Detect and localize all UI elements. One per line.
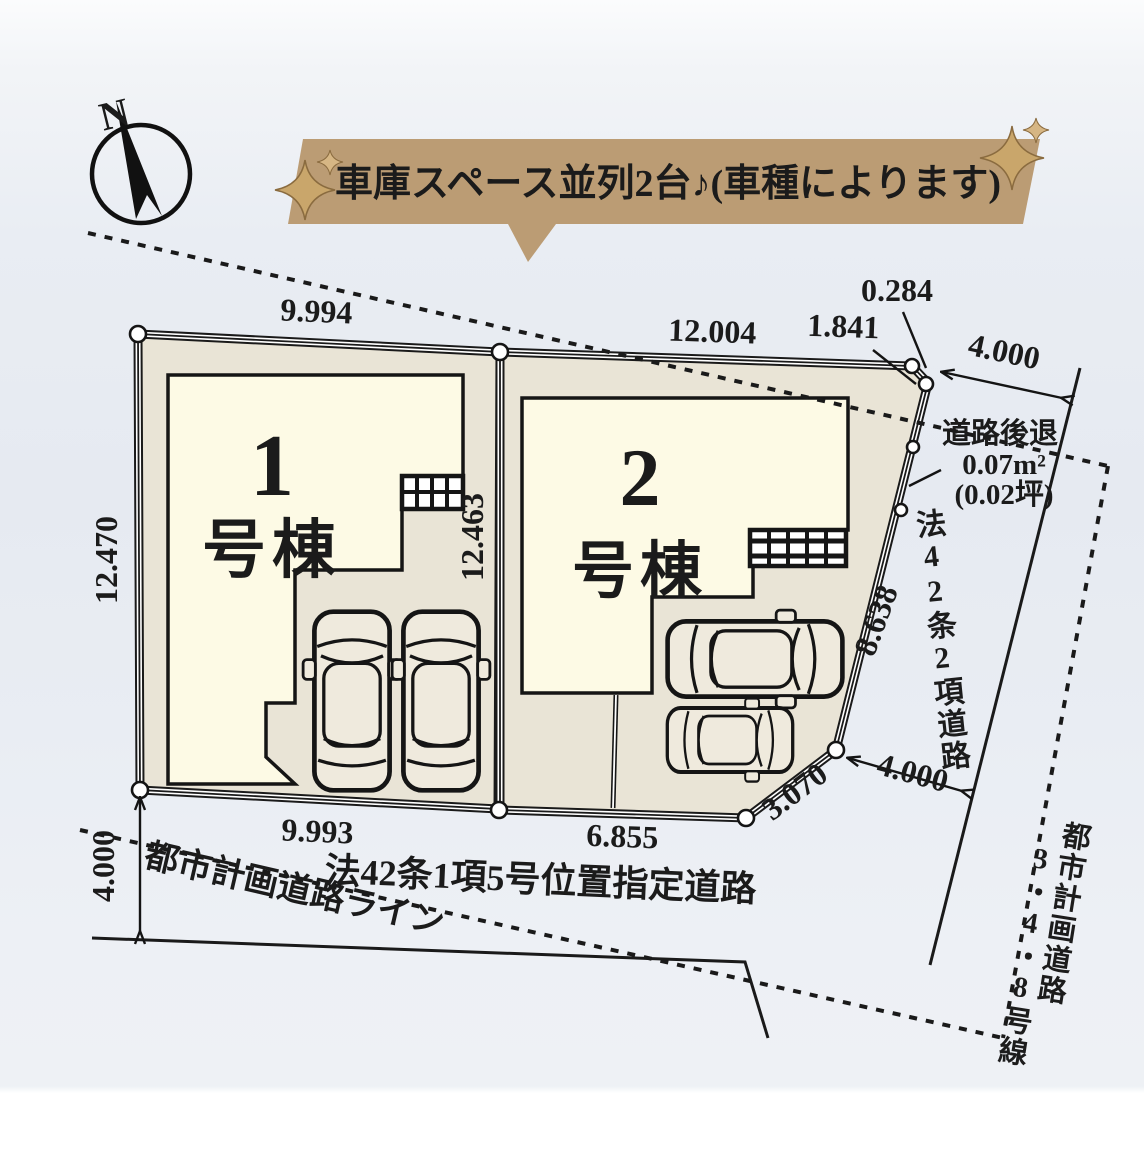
car-top-view [668,610,843,708]
dim-bottom-road-width: 4.000 [85,830,121,902]
dim-lot1-bottom: 9.993 [281,811,355,850]
dim-lot2-corner: 0.284 [861,272,933,308]
setback-title: 道路後退 [942,417,1058,450]
car-top-view [392,612,490,791]
dim-line-topright-4000 [942,372,1062,398]
setback-note: 道路後退 0.07m² (0.02坪) [942,417,1058,511]
setback-area: 0.07m² [962,449,1046,481]
dim-lot2-bottom: 6.855 [586,817,659,855]
banner-tail [508,224,556,262]
leader-setback [909,470,941,486]
dim-lot2-top: 12.004 [668,311,757,350]
banner: 車庫スペース並列2台♪(車種によります) [275,118,1049,262]
lot2-number: 2 [620,432,661,523]
setback-tsubo: (0.02坪) [954,478,1053,511]
lot2-label: 号棟 [572,538,708,606]
site-plan-svg: N 車庫スペース並列2台♪(車種によります) [0,0,1144,1173]
compass: N [92,89,190,223]
lot1-number: 1 [250,418,294,515]
road-labels: 法42条1項5号位置指定道路 都市計画道路ライン [140,835,758,942]
dim-lot1-left: 12.470 [88,516,124,604]
dim-right-road-top: 4.000 [965,326,1043,376]
banner-text: 車庫スペース並列2台♪(車種によります) [335,163,1001,205]
bottom-road-edge [92,938,768,1038]
building2-fence [613,695,616,808]
dim-lot1-top: 9.994 [280,291,354,330]
lot1-label: 号棟 [202,515,342,586]
compass-north-label: N [95,89,134,140]
car-top-view [303,612,401,791]
building2-balcony [750,530,846,566]
dim-lot2-topright: 1.841 [807,307,880,345]
dim-lot1-right: 12.463 [454,493,490,581]
car-top-view [667,698,792,781]
